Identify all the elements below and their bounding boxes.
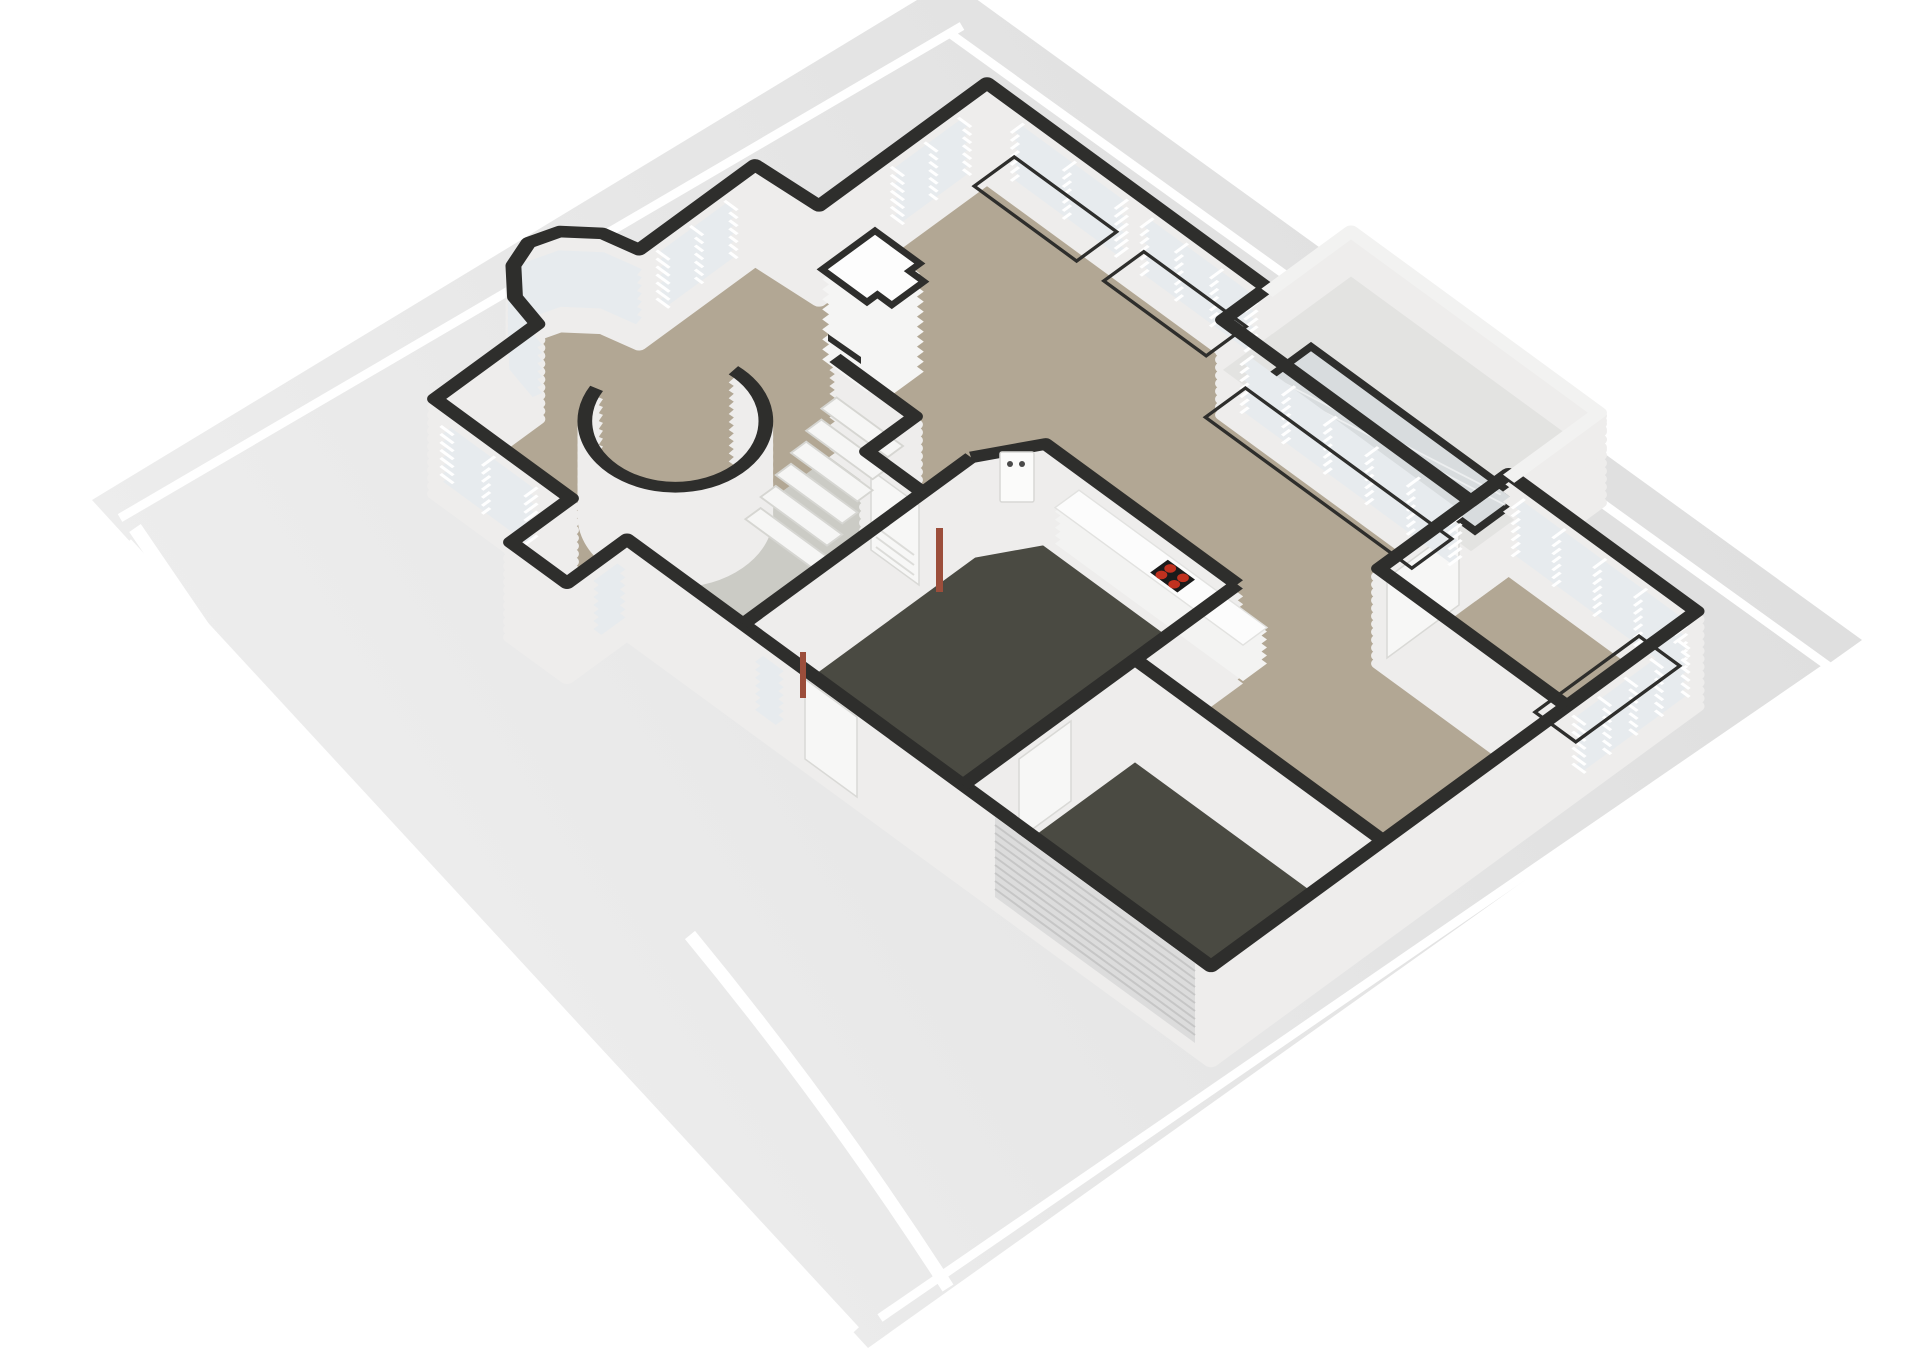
boiler (1000, 452, 1034, 502)
floorplan-viewport (0, 0, 1920, 1358)
floorplan-3d-render (0, 0, 1920, 1358)
